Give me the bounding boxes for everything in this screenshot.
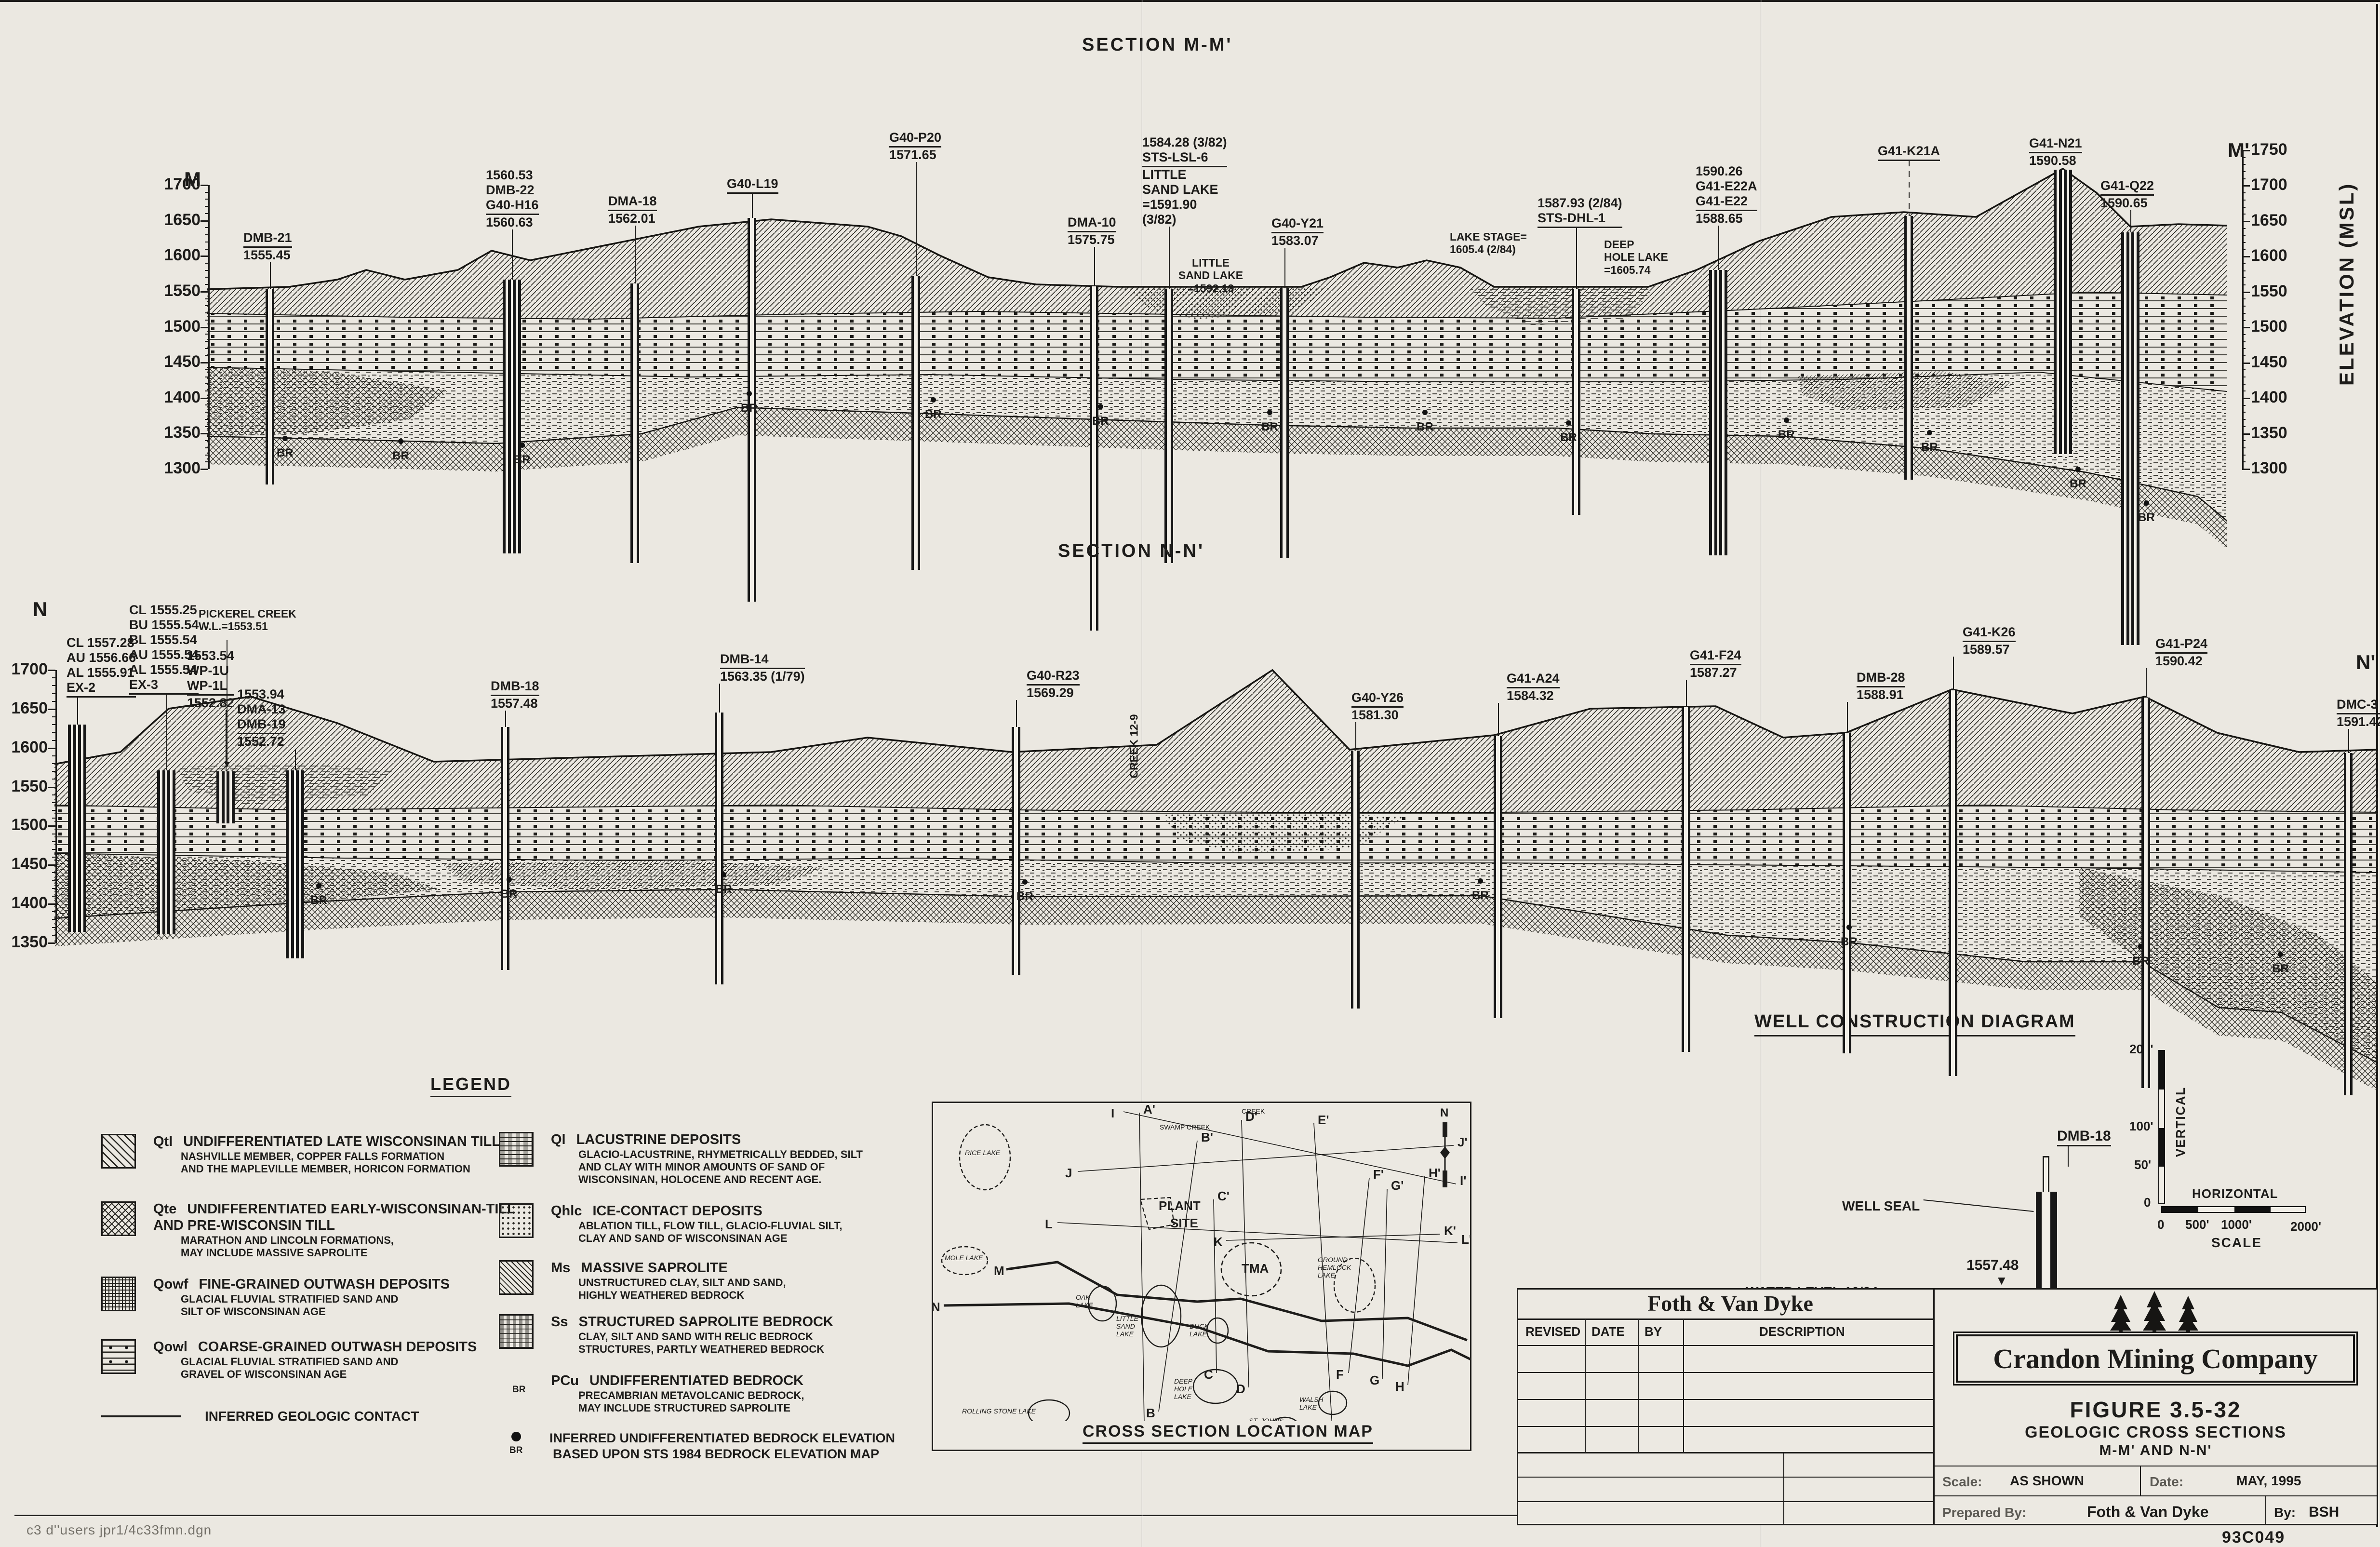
map-text: ST. JOHNS: [1249, 1417, 1284, 1421]
axis-minor-tick: [52, 763, 55, 764]
well-label-line: G41-K21A: [1878, 144, 1940, 161]
legend-sub-line: MARATHON AND LINCOLN FORMATIONS,: [181, 1234, 394, 1246]
well-leader: [635, 226, 636, 283]
axis-minor-tick: [2242, 277, 2246, 278]
axis-minor-tick: [52, 911, 55, 912]
legend-unit-title: STRUCTURED SAPROLITE BEDROCK: [578, 1314, 833, 1330]
well-label-line: DMB-14: [720, 652, 805, 669]
well-leader: [916, 162, 917, 276]
well-label-line: G40-L19: [727, 176, 778, 194]
well-label-line: 1562.01: [608, 211, 657, 226]
legend-sub-line: NASHVILLE MEMBER, COPPER FALLS FORMATION: [181, 1150, 444, 1162]
axis-minor-tick: [52, 810, 55, 811]
map-text: M: [994, 1264, 1004, 1278]
legend-unit-code: Qhlc: [551, 1203, 582, 1219]
axis-minor-tick: [2242, 412, 2246, 413]
axis-minor-tick: [205, 369, 208, 370]
well-label-g40-y21: G40-Y211583.07: [1271, 216, 1324, 248]
well-leader: [2130, 210, 2131, 232]
axis-tick-label: 1400: [158, 388, 201, 407]
axis-minor-tick: [205, 298, 208, 299]
map-text: K: [1214, 1235, 1223, 1249]
axis-tick-label: 1600: [5, 738, 48, 757]
well-bore: [1843, 733, 1851, 1053]
bedrock-elevation-dot: [282, 436, 288, 441]
legend-item-ms: MsMASSIVE SAPROLITE: [551, 1260, 728, 1276]
well-label-line: G40-H16: [486, 198, 539, 215]
legend-item-inferred-geologic-contact-swatch: [101, 1415, 181, 1417]
bedrock-elevation-dot: [398, 439, 403, 444]
map-lake: [1141, 1285, 1181, 1347]
axis-minor-tick: [205, 334, 208, 335]
well-label-sts-lsl-6: 1584.28 (3/82)STS-LSL-6LITTLESAND LAKE=1…: [1142, 135, 1227, 227]
bedrock-br-label: BR: [1778, 428, 1795, 442]
bedrock-elevation-dot: [2144, 500, 2149, 506]
axis-tick-label: 1550: [5, 777, 48, 796]
tb-line: [1585, 1318, 1586, 1452]
map-text: OAK: [1076, 1293, 1090, 1301]
legend-unit-code: Qte: [153, 1201, 176, 1217]
axis-minor-tick: [2242, 419, 2246, 420]
bedrock-elevation-dot: [1422, 410, 1428, 415]
axis-tick: [48, 942, 55, 944]
section-end-label-nn: N: [33, 598, 47, 621]
elevation-axis-mm: [2242, 150, 2244, 469]
axis-minor-tick: [52, 857, 55, 858]
bedrock-br-label: BR: [1092, 415, 1109, 428]
axis-tick-label: 1700: [2251, 175, 2287, 194]
well-label-line: DMA-10: [1068, 215, 1116, 232]
well-leader: [1718, 226, 1719, 270]
legend-sub-line: STRUCTURES, PARTLY WEATHERED BEDROCK: [578, 1343, 824, 1355]
map-text: HOLE: [1174, 1385, 1193, 1393]
vscale-50: 50': [2134, 1158, 2151, 1172]
well-label-line: G40-Y26: [1351, 690, 1404, 708]
water-level-value: 1557.48: [1966, 1257, 2019, 1274]
tb-line: [1783, 1452, 1784, 1525]
bedrock-elevation-dot: [520, 443, 525, 448]
figure-subtitle: M-M' AND N-N': [1933, 1442, 2378, 1459]
rev-header: DATE: [1591, 1325, 1625, 1339]
legend-item-ms-swatch: [499, 1260, 534, 1295]
file-path-footer: c3 d''users jpr1/4c33fmn.dgn: [27, 1522, 212, 1538]
well-leader: [1498, 703, 1499, 736]
well-leader: [1953, 657, 1954, 690]
map-text: L: [1045, 1217, 1053, 1231]
well-leader: [1169, 227, 1170, 289]
axis-tick-label: 1400: [2251, 388, 2287, 407]
legend-item-qhlc: QhlcICE-CONTACT DEPOSITS: [551, 1203, 762, 1219]
axis-minor-tick: [52, 888, 55, 889]
well-label-g41-a24: G41-A241584.32: [1507, 671, 1560, 703]
axis-minor-tick: [205, 270, 208, 271]
legend-sub-line: MAY INCLUDE STRUCTURED SAPROLITE: [578, 1402, 790, 1414]
map-north-arrow-icon: [1440, 1122, 1450, 1187]
well-leader: [1686, 680, 1687, 707]
scale-title: SCALE: [2211, 1235, 2262, 1251]
map-text: L': [1461, 1232, 1470, 1247]
well-leader: [512, 229, 513, 280]
well-label-line: STS-DHL-1: [1538, 211, 1622, 228]
axis-tick-label: 1500: [5, 816, 48, 834]
well-label-line: =1591.90: [1142, 197, 1227, 212]
well-bore: [1012, 727, 1020, 975]
rev-header: BY: [1645, 1325, 1662, 1339]
bedrock-elevation-dot: [747, 391, 752, 396]
legend-item-qhlc-swatch: [499, 1203, 534, 1238]
well-label-dmb-18: DMB-181557.48: [491, 679, 539, 711]
map-text: F: [1336, 1367, 1344, 1382]
date-field-label: Date:: [2150, 1474, 2183, 1490]
axis-minor-tick: [2242, 214, 2246, 215]
annotation-line: 1605.4 (2/84): [1450, 243, 1527, 256]
well-bore: [2344, 753, 2353, 1095]
well-label-line: 1590.26: [1696, 164, 1757, 179]
well-bore: [1709, 270, 1727, 555]
axis-minor-tick: [2242, 320, 2246, 321]
axis-minor-tick: [2242, 178, 2246, 179]
bedrock-br-label: BR: [741, 402, 758, 415]
well-seal-label: WELL SEAL: [1842, 1198, 1920, 1214]
map-section-line-G: [1382, 1189, 1387, 1379]
well-leader: [1284, 248, 1285, 288]
well-label-dmb-14: DMB-141563.35 (1/79): [720, 652, 805, 684]
map-text: I': [1460, 1173, 1466, 1188]
bedrock-elevation-dot: [1566, 420, 1571, 426]
map-text: SITE: [1170, 1216, 1198, 1230]
axis-minor-tick: [2242, 164, 2246, 165]
axis-minor-tick: [52, 677, 55, 678]
map-text: G': [1391, 1178, 1404, 1193]
map-section-line-H: [1408, 1176, 1425, 1385]
axis-minor-tick: [205, 192, 208, 193]
hscale-2000: 2000': [2290, 1220, 2321, 1234]
map-text: LAKE: [1299, 1403, 1317, 1411]
legend-unit-title: UNDIFFERENTIATED LATE WISCONSINAN TILL: [183, 1134, 500, 1149]
annotation-line: HOLE LAKE: [1604, 251, 1668, 263]
annotation-creek-12-9: CREEK 12-9: [1128, 714, 1140, 779]
map-lake: [960, 1125, 1010, 1190]
legend-sub-line: AND THE MAPLEVILLE MEMBER, HORICON FORMA…: [181, 1163, 470, 1175]
rev-header: DESCRIPTION: [1759, 1325, 1845, 1339]
well-bore: [1164, 289, 1173, 563]
bedrock-br-label: BR: [2138, 511, 2155, 525]
tb-line: [1517, 1399, 1933, 1400]
well-diagram-well-glyph: [2043, 1156, 2049, 1194]
hscale-1000: 1000': [2221, 1218, 2252, 1232]
well-label-g41-q22: G41-Q221590.65: [2100, 178, 2154, 211]
axis-minor-tick: [205, 312, 208, 313]
map-text: I: [1111, 1106, 1114, 1120]
well-label-line: 1560.63: [486, 215, 539, 230]
annotation-line: PICKEREL CREEK: [199, 607, 296, 620]
legend-sub-line: AND CLAY WITH MINOR AMOUNTS OF SAND OF: [578, 1161, 825, 1173]
bedrock-br-label: BR: [1472, 889, 1489, 902]
axis-minor-tick: [52, 818, 55, 819]
bedrock-br-label: BR: [514, 453, 531, 467]
axis-tick: [48, 903, 55, 905]
map-text: N: [1440, 1106, 1448, 1119]
well-diagram-well-body: [2036, 1192, 2057, 1293]
bedrock-br-label: BR: [1016, 890, 1033, 903]
well-label-g40-r23: G40-R231569.29: [1027, 668, 1080, 700]
axis-minor-tick: [205, 305, 208, 306]
vscale-100: 100': [2129, 1119, 2153, 1134]
axis-minor-tick: [205, 440, 208, 441]
axis-tick: [201, 433, 208, 434]
section-title-mm: SECTION M-M': [1082, 35, 1232, 56]
geology-shape: [54, 670, 2378, 812]
well-label-line: AL 1555.91: [67, 665, 136, 680]
well-bore: [1904, 216, 1913, 480]
well-label-line: CL 1557.28: [67, 635, 136, 650]
axis-minor-tick: [2242, 192, 2246, 193]
map-text: GROUND: [1318, 1256, 1348, 1264]
well-bore: [1494, 736, 1502, 1018]
axis-minor-tick: [52, 732, 55, 733]
map-text: F': [1373, 1167, 1384, 1182]
legend-item-inferred-undifferentiated-bedrock-elevation: INFERRED UNDIFFERENTIATED BEDROCK ELEVAT…: [549, 1431, 895, 1446]
legend-sub-line: GRAVEL OF WISCONSINAN AGE: [181, 1368, 347, 1380]
axis-tick-label: 1650: [158, 211, 201, 229]
axis-minor-tick: [2242, 298, 2246, 299]
bedrock-elevation-dot: [1478, 878, 1483, 884]
bedrock-br-label: BR: [1261, 420, 1278, 434]
bedrock-elevation-dot: [1846, 925, 1852, 930]
axis-minor-tick: [205, 455, 208, 456]
axis-minor-tick: [205, 242, 208, 242]
company-logo-trees-icon: [2087, 1290, 2222, 1332]
elevation-axis-label: ELEVATION (MSL): [2335, 182, 2358, 386]
bedrock-elevation-dot: [316, 883, 321, 888]
well-bore: [911, 276, 920, 570]
legend-sub-line: UNSTRUCTURED CLAY, SILT AND SAND,: [578, 1277, 786, 1289]
axis-tick-label: 1550: [158, 282, 201, 300]
well-label-line: G41-N21: [2029, 136, 2082, 153]
axis-minor-tick: [52, 724, 55, 725]
rev-header: REVISED: [1525, 1325, 1580, 1339]
well-bore: [68, 725, 86, 932]
annotation-line: LITTLE: [1178, 256, 1243, 269]
scale-field-value: AS SHOWN: [2010, 1473, 2084, 1489]
by-field-value: BSH: [2309, 1504, 2339, 1521]
tb-line: [1517, 1318, 1933, 1320]
axis-minor-tick: [52, 841, 55, 842]
axis-minor-tick: [2242, 157, 2246, 158]
bedrock-br-label: BR: [2272, 962, 2289, 976]
axis-tick-label: 1500: [2251, 317, 2287, 336]
legend-sub-line: HIGHLY WEATHERED BEDROCK: [578, 1289, 744, 1301]
axis-minor-tick: [52, 716, 55, 717]
legend-item-inferred-undifferentiated-bedrock-elevation-line2: BASED UPON STS 1984 BEDROCK ELEVATION MA…: [553, 1447, 879, 1462]
axis-minor-tick: [52, 779, 55, 780]
legend-sub-line: GLACIAL FLUVIAL STRATIFIED SAND AND: [181, 1356, 398, 1368]
axis-tick: [2242, 327, 2250, 328]
axis-tick-label: 1650: [2251, 211, 2287, 230]
axis-tick: [201, 291, 208, 293]
tb-line: [1517, 1452, 1933, 1453]
bedrock-elevation-dot: [1267, 410, 1272, 415]
axis-minor-tick: [2242, 426, 2246, 427]
legend-item-inferred-geologic-contact: INFERRED GEOLOGIC CONTACT: [205, 1409, 419, 1424]
well-leader: [1094, 247, 1095, 286]
annotation-line: W.L.=1553.51: [199, 620, 296, 632]
axis-minor-tick: [52, 740, 55, 741]
bedrock-br-label: BR: [1921, 441, 1938, 454]
axis-minor-tick: [2242, 284, 2246, 285]
axis-tick: [201, 327, 208, 328]
annotation-lake-stage-: LAKE STAGE=1605.4 (2/84): [1450, 230, 1527, 256]
bedrock-br-label: BR: [1841, 935, 1858, 949]
well-label-g41-n21: G41-N211590.58: [2029, 136, 2082, 168]
well-label-dma-18: DMA-181562.01: [608, 194, 657, 226]
well-label-line: DMB-28: [1857, 670, 1905, 687]
map-section-line-K: [1226, 1234, 1440, 1240]
well-label-g41-k21a: G41-K21A: [1878, 144, 1940, 161]
axis-minor-tick: [2242, 313, 2246, 314]
tb-line: [2140, 1466, 2141, 1495]
section-end-label-nn: N': [2356, 651, 2375, 674]
bedrock-br-label: BR: [925, 408, 942, 421]
legend-unit-title: FINE-GRAINED OUTWASH DEPOSITS: [199, 1277, 450, 1292]
legend-unit-code: Qowl: [153, 1339, 187, 1355]
map-text: HEMLOCK: [1318, 1264, 1351, 1271]
axis-minor-tick: [205, 404, 208, 405]
axis-tick-label: 1500: [158, 317, 201, 336]
map-section-line-A: [1139, 1113, 1144, 1421]
map-section-line-C: [1214, 1199, 1217, 1373]
legend-br-mark: BR: [509, 1445, 522, 1456]
bedrock-elevation-dot: [1784, 417, 1789, 423]
well-label-dmb-19: 1553.94DMA-13DMB-191552.72: [237, 687, 286, 749]
well-leader: [295, 749, 296, 770]
doc-code: 93C049: [2222, 1528, 2285, 1547]
axis-tick: [2242, 256, 2250, 257]
map-text: B: [1146, 1406, 1155, 1420]
annotation-pickerel-creek: PICKEREL CREEKW.L.=1553.51: [199, 607, 296, 633]
axis-tick: [2242, 469, 2250, 470]
map-section-line-J: [1078, 1145, 1454, 1171]
bedrock-br-label: BR: [1417, 420, 1433, 434]
axis-tick: [48, 825, 55, 827]
company-name: Crandon Mining Company: [1956, 1343, 2355, 1375]
well-leader: [2348, 729, 2349, 753]
axis-minor-tick: [205, 284, 208, 285]
axis-tick: [2242, 185, 2250, 187]
well-label-line: G41-F24: [1690, 648, 1741, 665]
well-label-line: 1553.94: [237, 687, 286, 702]
legend-item-ss: SsSTRUCTURED SAPROLITE BEDROCK: [551, 1314, 833, 1330]
tb-line: [1933, 1466, 2378, 1466]
legend-item-qowf: QowfFINE-GRAINED OUTWASH DEPOSITS: [153, 1277, 450, 1292]
map-text: G: [1370, 1373, 1379, 1387]
well-bore: [266, 289, 274, 484]
well-label-line: 1591.42: [2337, 714, 2380, 729]
legend-item-qtl: QtlUNDIFFERENTIATED LATE WISCONSINAN TIL…: [153, 1134, 500, 1150]
axis-minor-tick: [205, 234, 208, 235]
scale-field-label: Scale:: [1942, 1474, 1982, 1490]
axis-minor-tick: [2242, 455, 2246, 456]
axis-minor-tick: [52, 919, 55, 920]
annotation-line: =1605.74: [1604, 264, 1668, 276]
well-label-line: 1587.27: [1690, 665, 1741, 680]
well-label-line: G41-E22A: [1696, 179, 1757, 194]
map-text: LAKE: [1318, 1271, 1335, 1279]
map-text: CREEK: [1242, 1107, 1265, 1115]
axis-minor-tick: [205, 412, 208, 413]
map-text: SAND: [1116, 1322, 1135, 1330]
legend-item-qowf-swatch: [101, 1277, 136, 1311]
bedrock-elevation-dot: [2138, 944, 2143, 949]
axis-minor-tick: [205, 355, 208, 356]
legend-unit-code: Qtl: [153, 1134, 173, 1149]
well-bore: [715, 713, 723, 984]
axis-minor-tick: [52, 693, 55, 694]
axis-minor-tick: [2242, 171, 2246, 172]
bedrock-elevation-dot: [507, 877, 512, 882]
axis-minor-tick: [205, 206, 208, 207]
legend-unit-title: COARSE-GRAINED OUTWASH DEPOSITS: [198, 1339, 477, 1355]
axis-minor-tick: [205, 348, 208, 349]
well-label-g41-k26: G41-K261589.57: [1963, 625, 2016, 657]
elevation-axis-nn: [55, 670, 57, 943]
axis-minor-tick: [2242, 461, 2246, 462]
figure-title: GEOLOGIC CROSS SECTIONS: [1933, 1423, 2378, 1442]
axis-tick-label: 1350: [2251, 424, 2287, 443]
map-text: A': [1143, 1103, 1155, 1117]
map-text: B': [1201, 1130, 1213, 1144]
well-label-line: 1575.75: [1068, 232, 1116, 247]
legend-unit-title: MASSIVE SAPROLITE: [581, 1260, 728, 1276]
bedrock-br-label: BR: [715, 883, 732, 896]
axis-minor-tick: [52, 834, 55, 834]
well-label-line: 1571.65: [889, 148, 941, 162]
bedrock-br-label: BR: [501, 888, 518, 901]
bedrock-elevation-dot: [1927, 430, 1932, 435]
legend-unit-code: Qowf: [153, 1277, 188, 1292]
well-label-dmb-21: DMB-211555.45: [243, 230, 292, 263]
well-leader: [1355, 722, 1356, 751]
well-label-g41-p24: G41-P241590.42: [2155, 636, 2207, 669]
bedrock-br-label: BR: [310, 894, 327, 907]
bedrock-elevation-dot: [1022, 879, 1028, 885]
hscale-500: 500': [2185, 1218, 2209, 1232]
legend-br-mark: BR: [512, 1385, 525, 1395]
axis-tick: [2242, 433, 2250, 435]
axis-minor-tick: [52, 896, 55, 897]
axis-tick-label: 1400: [5, 894, 48, 913]
axis-minor-tick: [52, 872, 55, 873]
axis-minor-tick: [205, 341, 208, 342]
axis-tick-label: 1350: [5, 933, 48, 952]
horizontal-scale-label: HORIZONTAL: [2192, 1187, 2278, 1201]
axis-tick-label: 1450: [2251, 353, 2287, 372]
axis-tick: [201, 256, 208, 257]
axis-minor-tick: [2242, 263, 2246, 264]
well-label-line: EX-2: [67, 680, 136, 698]
well-label-line: G41-A24: [1507, 671, 1560, 688]
bedrock-br-label: BR: [2132, 955, 2149, 968]
well-label-dmb-28: DMB-281588.91: [1857, 670, 1905, 702]
map-text: LITTLE: [1116, 1315, 1139, 1322]
annotation-line: CREEK 12-9: [1128, 714, 1140, 779]
well-diagram-well-id: DMB-18: [2057, 1128, 2111, 1146]
map-text: A: [1132, 1419, 1141, 1421]
well-bore: [501, 727, 509, 970]
axis-minor-tick: [2242, 440, 2246, 441]
annotation-line: =1592.13: [1178, 282, 1243, 295]
axis-minor-tick: [52, 755, 55, 756]
